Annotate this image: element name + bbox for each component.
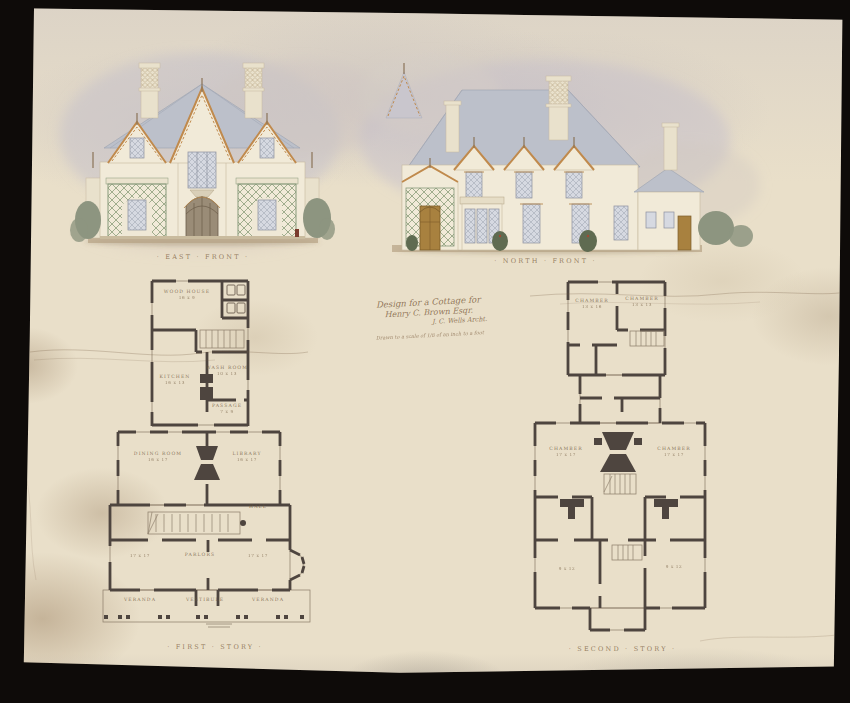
room-dim: 7 x 9: [204, 409, 250, 415]
hall-stair: [148, 512, 246, 534]
room-name: PARLORS: [165, 552, 235, 558]
chimney-stub: [560, 499, 678, 519]
lower-stair: [612, 545, 642, 560]
room-name: HALL: [238, 504, 278, 510]
upper-stair: [630, 331, 664, 346]
room-dim: 16 x 17: [212, 457, 282, 463]
room-label-hall: HALL: [238, 504, 278, 510]
room-name: VESTIBULE: [175, 597, 235, 603]
second-story-caption: · SECOND · STORY ·: [555, 645, 690, 653]
room-dim: 16 x 13: [145, 380, 205, 386]
room-label-parlors: PARLORS: [165, 552, 235, 558]
room-dim: 17 x 17: [118, 553, 162, 559]
room-dim: 10 x 13: [204, 371, 250, 377]
first-story-caption: · FIRST · STORY ·: [155, 643, 275, 651]
room-label-chamber-left: CHAMBER 17 x 17: [538, 446, 594, 458]
paper-creases: [24, 292, 846, 641]
window: [614, 206, 628, 240]
room-name: VERANDA: [112, 597, 168, 603]
room-dim-small-left: 9 x 12: [541, 566, 593, 572]
room-dim: 13 x 13: [618, 302, 666, 308]
north-front-caption: · NORTH · FRONT ·: [478, 257, 613, 265]
room-dim: 9 x 12: [541, 566, 593, 572]
room-label-chamber-right: CHAMBER 17 x 17: [646, 446, 702, 458]
arched-entrance-window: [184, 196, 220, 238]
room-label-dining-room: DINING ROOM 16 x 17: [123, 451, 193, 463]
room-dim-small-right: 9 x 12: [648, 564, 700, 570]
room-label-kitchen: KITCHEN 16 x 13: [145, 374, 205, 386]
service-stair: [200, 330, 244, 348]
parlor-dim-right: 17 x 17: [236, 553, 280, 559]
window: [520, 204, 543, 243]
room-label-passage: PASSAGE 7 x 9: [204, 403, 250, 415]
parlor-dim-left: 17 x 17: [118, 553, 162, 559]
oriel-window: [188, 152, 216, 197]
lattice-porch: [236, 178, 298, 238]
main-stair: [604, 474, 636, 494]
room-name: VERANDA: [240, 597, 296, 603]
room-label-vestibule: VESTIBULE: [175, 597, 235, 603]
room-dim: 9 x 12: [648, 564, 700, 570]
room-dim: 17 x 17: [236, 553, 280, 559]
chimney: [139, 63, 160, 118]
figure: [295, 229, 299, 237]
chimney: [546, 76, 571, 140]
photo-backdrop: · EAST · FRONT · · NORTH · FRONT · · FIR…: [0, 0, 850, 703]
title-inscription: Design for a Cottage for Henry C. Brown …: [364, 294, 494, 342]
veranda-columns: [104, 615, 304, 627]
east-front-caption: · EAST · FRONT ·: [148, 253, 258, 261]
plinth: [100, 236, 305, 239]
chimney: [243, 63, 264, 118]
chimney: [444, 101, 461, 152]
lattice-porch: [106, 178, 168, 238]
room-dim: 17 x 17: [646, 452, 702, 458]
room-label-chamber-upper-right: CHAMBER 13 x 13: [618, 296, 666, 308]
room-label-chamber-upper-left: CHAMBER 13 x 16: [566, 298, 618, 310]
room-label-wash-room: WASH ROOM 10 x 13: [204, 365, 250, 377]
central-chimney: [594, 432, 642, 472]
room-dim: 16 x 17: [123, 457, 193, 463]
room-dim: 17 x 17: [538, 452, 594, 458]
room-label-wood-house: WOOD HOUSE 16 x 9: [157, 289, 217, 301]
room-dim: 13 x 16: [566, 304, 618, 310]
room-label-library: LIBRARY 16 x 17: [212, 451, 282, 463]
room-label-veranda-left: VERANDA: [112, 597, 168, 603]
drawing-sheet: · EAST · FRONT · · NORTH · FRONT · · FIR…: [0, 0, 850, 703]
room-dim: 16 x 9: [157, 295, 217, 301]
room-label-veranda-right: VERANDA: [240, 597, 296, 603]
